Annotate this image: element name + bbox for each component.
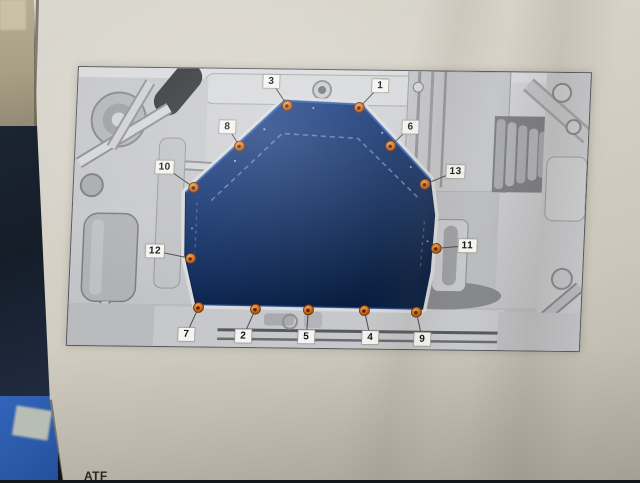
wall-highlight — [0, 0, 26, 30]
callout-label-9: 9 — [414, 333, 431, 346]
photographed-page-scene: 12345678910111213 ATF — [0, 0, 640, 480]
callout-label-13: 13 — [446, 165, 465, 178]
paper-page: 12345678910111213 ATF — [0, 0, 640, 480]
callout-label-6: 6 — [402, 120, 419, 133]
callout-label-5: 5 — [298, 330, 315, 343]
underbody-illustration-svg — [67, 67, 591, 351]
page-text-fragment: ATF — [84, 469, 108, 483]
callout-label-4: 4 — [362, 331, 379, 344]
callout-label-8: 8 — [219, 120, 236, 133]
callout-label-7: 7 — [178, 328, 195, 341]
background-light-patch — [12, 405, 52, 440]
callout-label-10: 10 — [155, 160, 174, 173]
bolt-diagram: 12345678910111213 — [66, 66, 592, 352]
callout-label-1: 1 — [372, 79, 389, 92]
callout-label-12: 12 — [146, 244, 165, 257]
callout-label-11: 11 — [458, 239, 476, 252]
callout-label-2: 2 — [235, 329, 252, 342]
callout-label-3: 3 — [263, 75, 280, 88]
